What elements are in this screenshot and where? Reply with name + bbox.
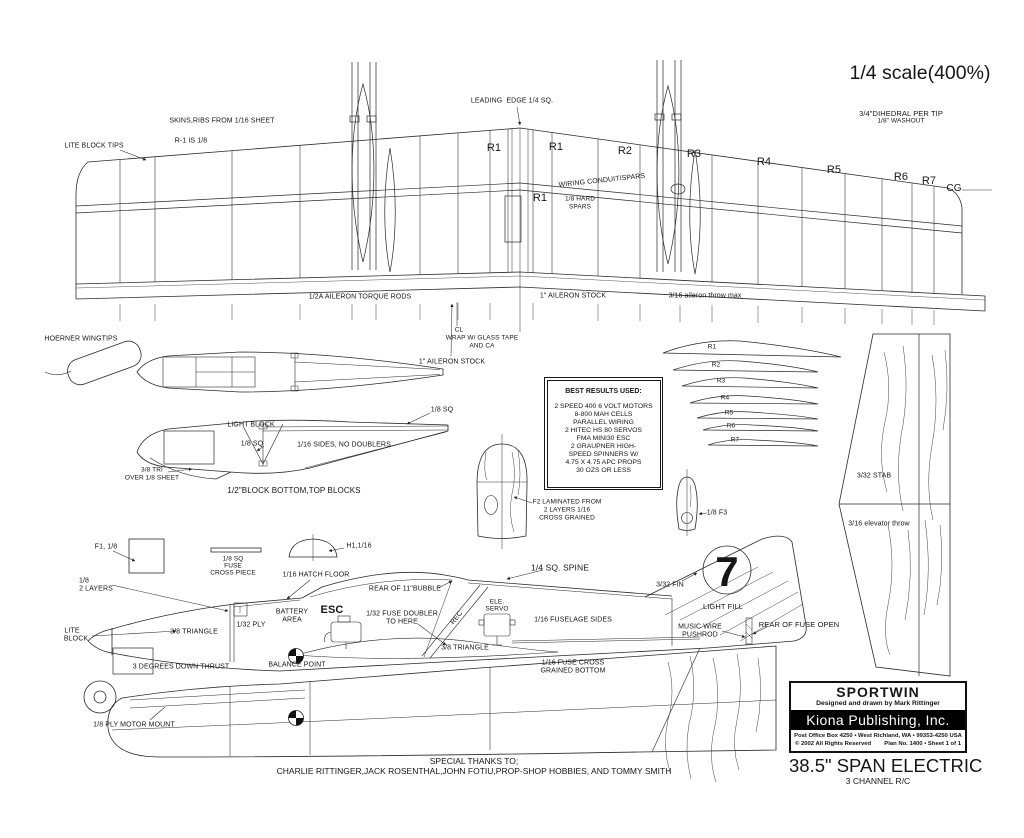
label-washout: 1/8" WASHOUT [877,119,924,126]
label-fuselage-sides: 1/16 FUSELAGE SIDES [534,616,612,623]
label-rib-r2: R2 [618,146,632,158]
label-block: BLOCK [64,635,88,642]
publisher-name: Kiona Publishing, Inc. [791,710,965,730]
label-stab: 3/32 STAB [857,472,891,479]
label-rib-r5: R5 [827,165,841,177]
label-f3: 1/8 F3 [707,509,727,516]
label-f1: F1, 1/8 [95,543,118,550]
note-line: PARALLEL WIRING [554,419,652,427]
notes-title: BEST RESULTS USED: [565,388,642,395]
left-motor-boom [350,62,395,272]
label-rib-r3: R3 [687,149,701,161]
label-rear-bubble: REAR OF 11"BUBBLE [369,585,441,592]
label-torque-rods: 1/2A AILERON TORQUE RODS [309,293,412,300]
esc-sketch [325,616,361,649]
channels-line: 3 CHANNEL R/C [789,776,967,786]
label-hard-spars-2: SPARS [569,205,591,212]
spinner-front-view [84,681,116,713]
label-fuse-cross-2: GRAINED BOTTOM [540,667,605,674]
copyright-line: © 2002 All Rights Reserved [795,740,871,748]
stab-wood-grain [881,346,947,655]
label-fin-number: 7 [715,550,738,594]
label-music-wire-1: MUSIC WIRE [678,623,722,630]
notes-box-inner: BEST RESULTS USED: 2 SPEED 400 6 VOLT MO… [547,380,661,488]
balance-point-symbol-bottom [289,711,304,726]
label-ply-132: 1/32 PLY [236,621,265,628]
notes-lines: 2 SPEED 400 6 VOLT MOTORS8-800 MAH CELLS… [554,403,652,475]
label-tpl-r5: R5 [725,411,734,418]
note-line: 30 OZS OR LESS [554,467,652,475]
scale-note: 1/4 scale(400%) [840,62,1000,85]
label-doubler-2: TO HERE [386,618,418,625]
label-rib-r7: R7 [922,176,936,188]
thanks-names: CHARLIE RITTINGER,JACK ROSENTHAL,JOHN FO… [204,766,744,777]
label-hatch-floor: 1/16 HATCH FLOOR [283,571,350,578]
plane-name: SPORTWIN [791,685,965,699]
label-aileron-stock-top: 1" AILERON STOCK [540,292,606,299]
label-lite-block-tips: LITE BLOCK TIPS [64,142,123,149]
label-over-18-sheet: OVER 1/8 SHEET [125,476,179,483]
fuse-cross-piece [211,548,261,552]
label-layers-2: 2 LAYERS [79,585,113,592]
former-f2 [477,434,532,549]
publisher-address: Post Office Box 4250 • West Richland, WA… [791,732,965,740]
label-tpl-r7: R7 [731,438,740,445]
label-tpl-r4: R4 [721,396,730,403]
note-line: 8-800 MAH CELLS [554,411,652,419]
fuselage-side-view [88,536,806,674]
span-line: 38.5" SPAN ELECTRIC [789,755,967,777]
label-rib-r4: R4 [757,157,771,169]
label-elevator-throw: 3/16 elevator throw [848,520,909,527]
label-rib-r1-center: R1 [533,193,547,205]
label-battery-1: BATTERY [276,608,308,615]
label-cg-label: CG [946,184,961,195]
label-tpl-r1: R1 [708,345,717,352]
label-f2-line1: F2 LAMINATED FROM [533,500,602,507]
label-doubler-1: 1/32 FUSE DOUBLER [366,610,438,617]
label-skins-ribs: SKINS,RIBS FROM 1/16 SHEET [169,117,274,124]
fuselage-top-view [137,352,443,392]
label-spine: 1/4 SQ. SPINE [531,564,589,573]
former-f3 [677,469,707,536]
label-lite: LITE [64,627,79,634]
plan-number-line: Plan No. 1400 • Sheet 1 of 1 [884,740,961,748]
label-light-fill: LIGHT FILL [703,603,743,611]
label-wrap-glass-1: WRAP W/ GLASS TAPE [446,336,519,343]
fuselage-side-structure [137,413,448,479]
label-light-block: LIGHT BLOCK [227,421,274,428]
label-balance-point: BALANCE POINT [268,661,325,668]
label-h1: H1,1/16 [346,542,371,549]
label-f2-line3: CROSS GRAINED [539,516,595,523]
plan-sheet: 1/4 scale(400%) LEADING EDGE 1/4 SQ.SKIN… [0,0,1024,838]
thanks-heading: SPECIAL THANKS TO; [204,756,744,766]
label-sq-mid: 1/8 SQ [241,440,263,447]
right-motor-boom [655,60,700,274]
label-servo: SERVO [485,607,508,614]
former-h1 [289,534,344,561]
former-f1 [113,539,164,573]
label-esc: ESC [321,605,344,617]
servo-sketch [479,614,515,645]
note-line: 2 GRAUPNER HIGH- [554,443,652,451]
label-aileron-throw: 3/16 aileron throw max [668,292,741,299]
label-tpl-r2: R2 [712,363,721,370]
note-line: 4.75 X 4.75 APC PROPS [554,459,652,467]
label-sq-top-right: 1/8 SQ [431,406,453,413]
label-cl-mark: CL [455,328,464,335]
label-aileron-stock-lower: 1" AILERON STOCK [419,358,485,365]
label-layers-1: 1/8 [79,577,89,584]
label-tri-38: 3/8 TRI [141,468,163,475]
label-sides-no-doublers: 1/16 SIDES, NO DOUBLERS [297,441,391,448]
designer-line: Designed and drawn by Mark Rittinger [791,699,965,708]
label-tpl-r3: R3 [717,379,726,386]
note-line: 2 HITEC HS 80 SERVOS [554,427,652,435]
label-leading-edge: LEADING EDGE 1/4 SQ. [471,97,553,104]
stab-plan [839,334,950,676]
label-triangle-aft: 3/8 TRIANGLE [441,644,489,651]
note-line: 2 SPEED 400 6 VOLT MOTORS [554,403,652,411]
wingtip-block [45,338,144,388]
notes-box: BEST RESULTS USED: 2 SPEED 400 6 VOLT MO… [544,377,663,490]
label-hard-spars-1: 1/8 HARD [565,197,595,204]
label-r1-is-eighth: R-1 IS 1/8 [175,137,208,144]
label-down-thrust: 3 DEGREES DOWN THRUST [133,663,229,670]
copyright-row: © 2002 All Rights Reserved Plan No. 1400… [791,740,965,748]
label-fuse-cross-1: 1/16 FUSE CROSS [542,659,605,666]
rib-templates [663,341,841,446]
title-block: SPORTWIN Designed and drawn by Mark Ritt… [789,681,967,753]
label-fin-332: 3/32 FIN [656,581,684,588]
label-block-bottom: 1/2"BLOCK BOTTOM,TOP BLOCKS [227,487,360,495]
label-fuse-open: REAR OF FUSE OPEN [759,621,839,629]
note-line: SPEED SPINNERS W/ [554,451,652,459]
note-line: FMA MINI30 ESC [554,435,652,443]
label-rib-r1-left: R1 [487,143,501,155]
label-cross-piece-3: CROSS PIECE [210,571,256,578]
label-music-wire-2: PUSHROD [682,631,718,638]
label-hoerner: HOERNER WINGTIPS [44,335,117,342]
label-battery-2: AREA [282,616,301,623]
label-rib-r6: R6 [894,172,908,184]
label-f2-line2: 2 LAYERS 1/16 [544,508,590,515]
label-motor-mount: 1/8 PLY MOTOR MOUNT [93,721,175,728]
label-rib-r1-mid: R1 [549,142,563,154]
label-wrap-glass-2: AND CA [469,344,494,351]
label-tpl-r6: R6 [727,424,736,431]
special-thanks: SPECIAL THANKS TO; CHARLIE RITTINGER,JAC… [204,756,744,777]
label-triangle-fwd: 3/8 TRIANGLE [170,628,218,635]
